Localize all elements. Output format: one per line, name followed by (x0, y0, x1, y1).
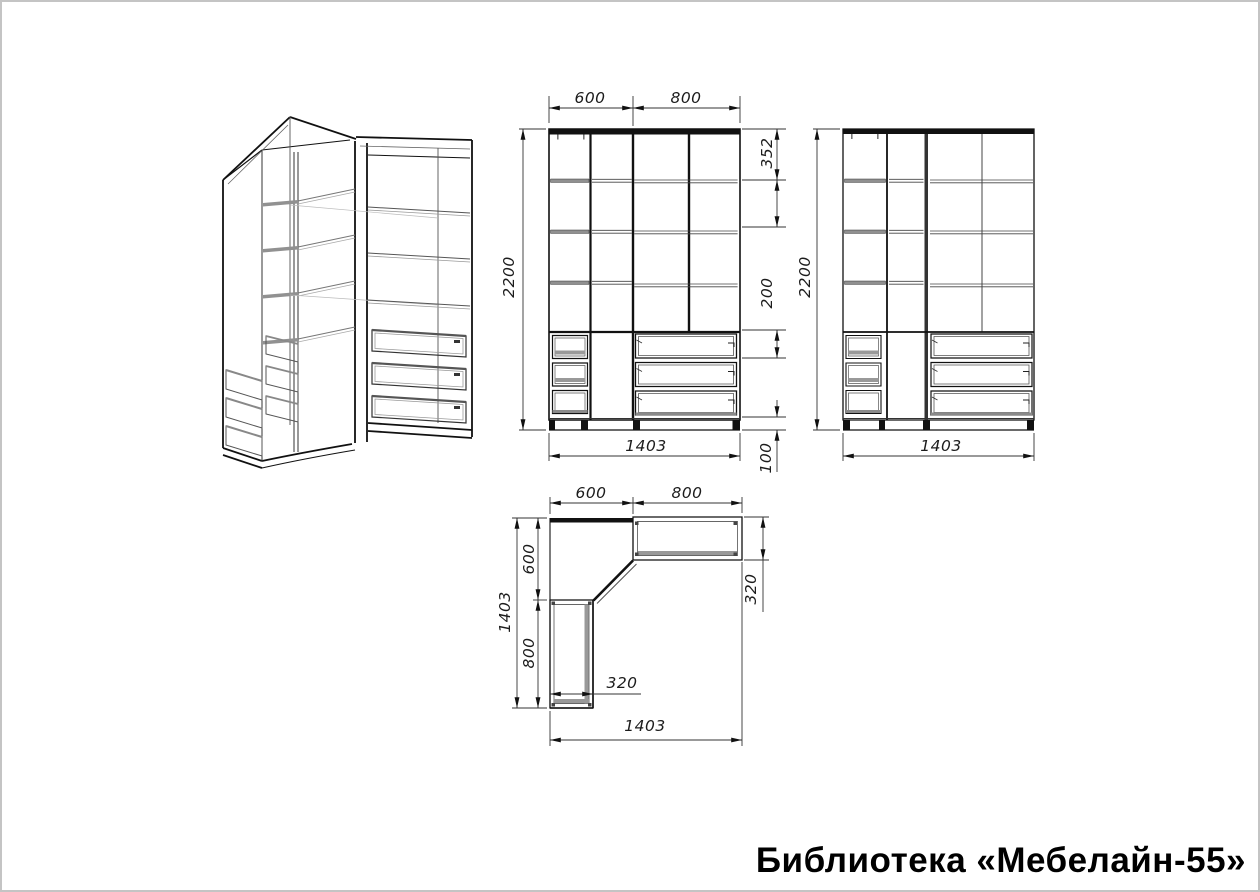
iso-shelf-perspective-lines (290, 189, 470, 342)
drawing-sheet: 600 800 2200 352 200 100 1403 (0, 0, 1260, 892)
front-small-drawers (553, 336, 588, 414)
back-small-drawers (846, 336, 881, 414)
plan-dim-1403-bottom: 1403 (624, 717, 665, 735)
iso-outline (223, 117, 472, 468)
front-dim-100: 100 (757, 442, 775, 473)
iso-right-drawers (372, 330, 466, 423)
back-shelves (845, 179, 1034, 287)
front-shelves (551, 179, 738, 287)
back-elevation: 2200 1403 (796, 129, 1034, 461)
front-wide-drawers (636, 334, 737, 416)
product-title: Библиотека «Мебелайн-55» (756, 841, 1246, 881)
front-dim-1403: 1403 (625, 437, 666, 455)
iso-shelves (263, 200, 298, 345)
front-dimension-labels: 600 800 2200 352 200 100 1403 (500, 89, 776, 474)
plan-view: 600 800 1403 600 800 320 320 1403 (496, 484, 769, 746)
plan-dim-600-top: 600 (575, 484, 606, 502)
isometric-view (223, 117, 472, 468)
front-cabinet (549, 129, 740, 430)
front-dim-600: 600 (574, 89, 605, 107)
back-cabinet (843, 129, 1034, 430)
plan-body (550, 517, 742, 708)
front-dim-200: 200 (758, 277, 776, 308)
plan-dim-600-left: 600 (520, 543, 538, 574)
plan-dim-1403-left: 1403 (496, 591, 514, 632)
plan-dim-320-inner: 320 (606, 674, 637, 692)
back-wide-drawers (931, 334, 1032, 416)
back-dim-2200: 2200 (796, 256, 814, 297)
front-elevation: 600 800 2200 352 200 100 1403 (500, 89, 786, 474)
plan-dim-800-top: 800 (671, 484, 702, 502)
drawing-canvas: 600 800 2200 352 200 100 1403 (0, 0, 1260, 892)
front-dim-800: 800 (670, 89, 701, 107)
back-dim-1403: 1403 (920, 437, 961, 455)
plan-dim-320-right: 320 (742, 573, 760, 604)
front-dim-2200: 2200 (500, 256, 518, 297)
front-dim-352: 352 (758, 137, 776, 168)
plan-dim-800-left: 800 (520, 637, 538, 668)
